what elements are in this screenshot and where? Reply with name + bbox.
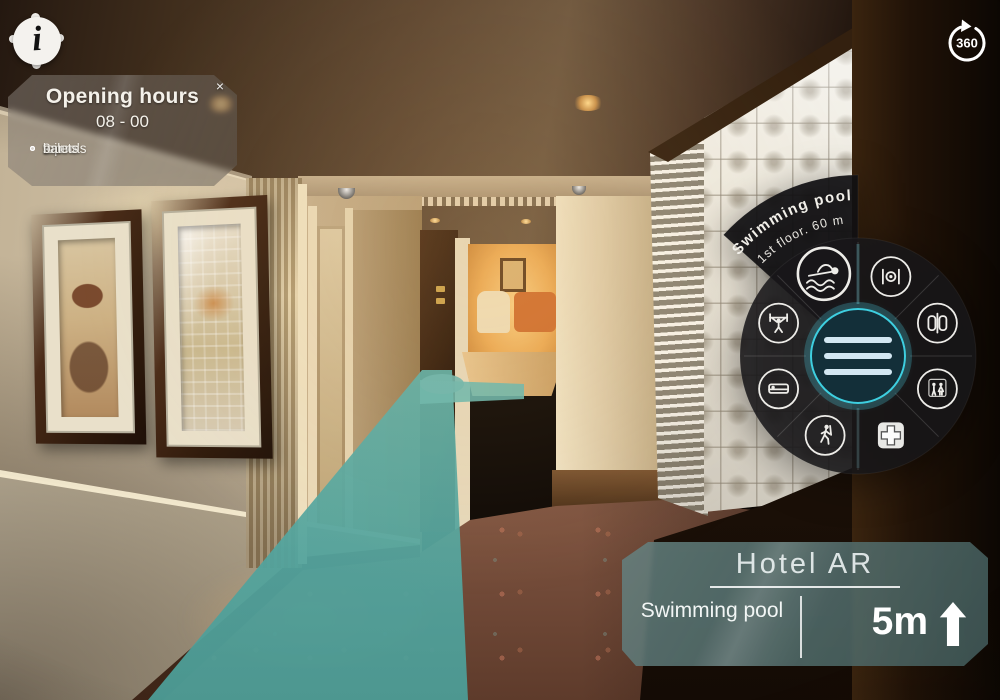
picture-art: [58, 238, 119, 417]
app-title: Hotel AR: [622, 548, 988, 581]
picture-art: [178, 224, 245, 432]
rotate-label: 360: [956, 36, 978, 51]
info-icon-glyph: i: [11, 13, 62, 64]
corridor-downlight: [430, 218, 440, 223]
hamburger-icon: [824, 337, 892, 375]
rotate-360-button[interactable]: 360: [940, 16, 994, 70]
opening-hours-value: 08 - 00: [8, 112, 237, 132]
destination-panel: Hotel AR Swimming pool 5m: [622, 542, 988, 666]
first-aid-icon[interactable]: [878, 422, 904, 448]
info-button[interactable]: i: [10, 14, 66, 70]
rotate-icon: 360: [940, 16, 994, 70]
opening-hours-title: Opening hours: [8, 85, 237, 109]
rotate-arrowhead-icon: [961, 20, 972, 33]
radial-menu: Swimming pool 1st floor. 60 m: [638, 136, 1000, 576]
navigation-path-marker: [420, 374, 464, 394]
framed-picture-1: [31, 209, 146, 444]
door-plaque: [436, 286, 445, 292]
bullet-icon: [30, 146, 35, 151]
framed-picture-2: [151, 195, 273, 459]
direction-up-arrow-icon: [938, 602, 968, 646]
amenities-list: 2 pools sauna toilets bar: [30, 141, 215, 145]
far-armchair: [477, 291, 510, 333]
pilaster-edge: [298, 184, 307, 564]
panel-divider: [800, 596, 802, 658]
corridor-downlight: [521, 219, 531, 224]
ar-hotel-view: i Opening hours 08 - 00 × 2 pools sauna …: [0, 0, 1000, 700]
ceiling-light: [572, 95, 604, 111]
opening-hours-panel: Opening hours 08 - 00 × 2 pools sauna to…: [8, 75, 237, 186]
menu-center-button[interactable]: [800, 298, 916, 414]
destination-name: Swimming pool: [632, 598, 792, 624]
far-sofa: [514, 292, 556, 332]
title-divider: [710, 586, 900, 588]
door-plaque: [436, 298, 445, 304]
destination-distance: 5m: [818, 600, 928, 644]
far-picture: [500, 258, 526, 292]
